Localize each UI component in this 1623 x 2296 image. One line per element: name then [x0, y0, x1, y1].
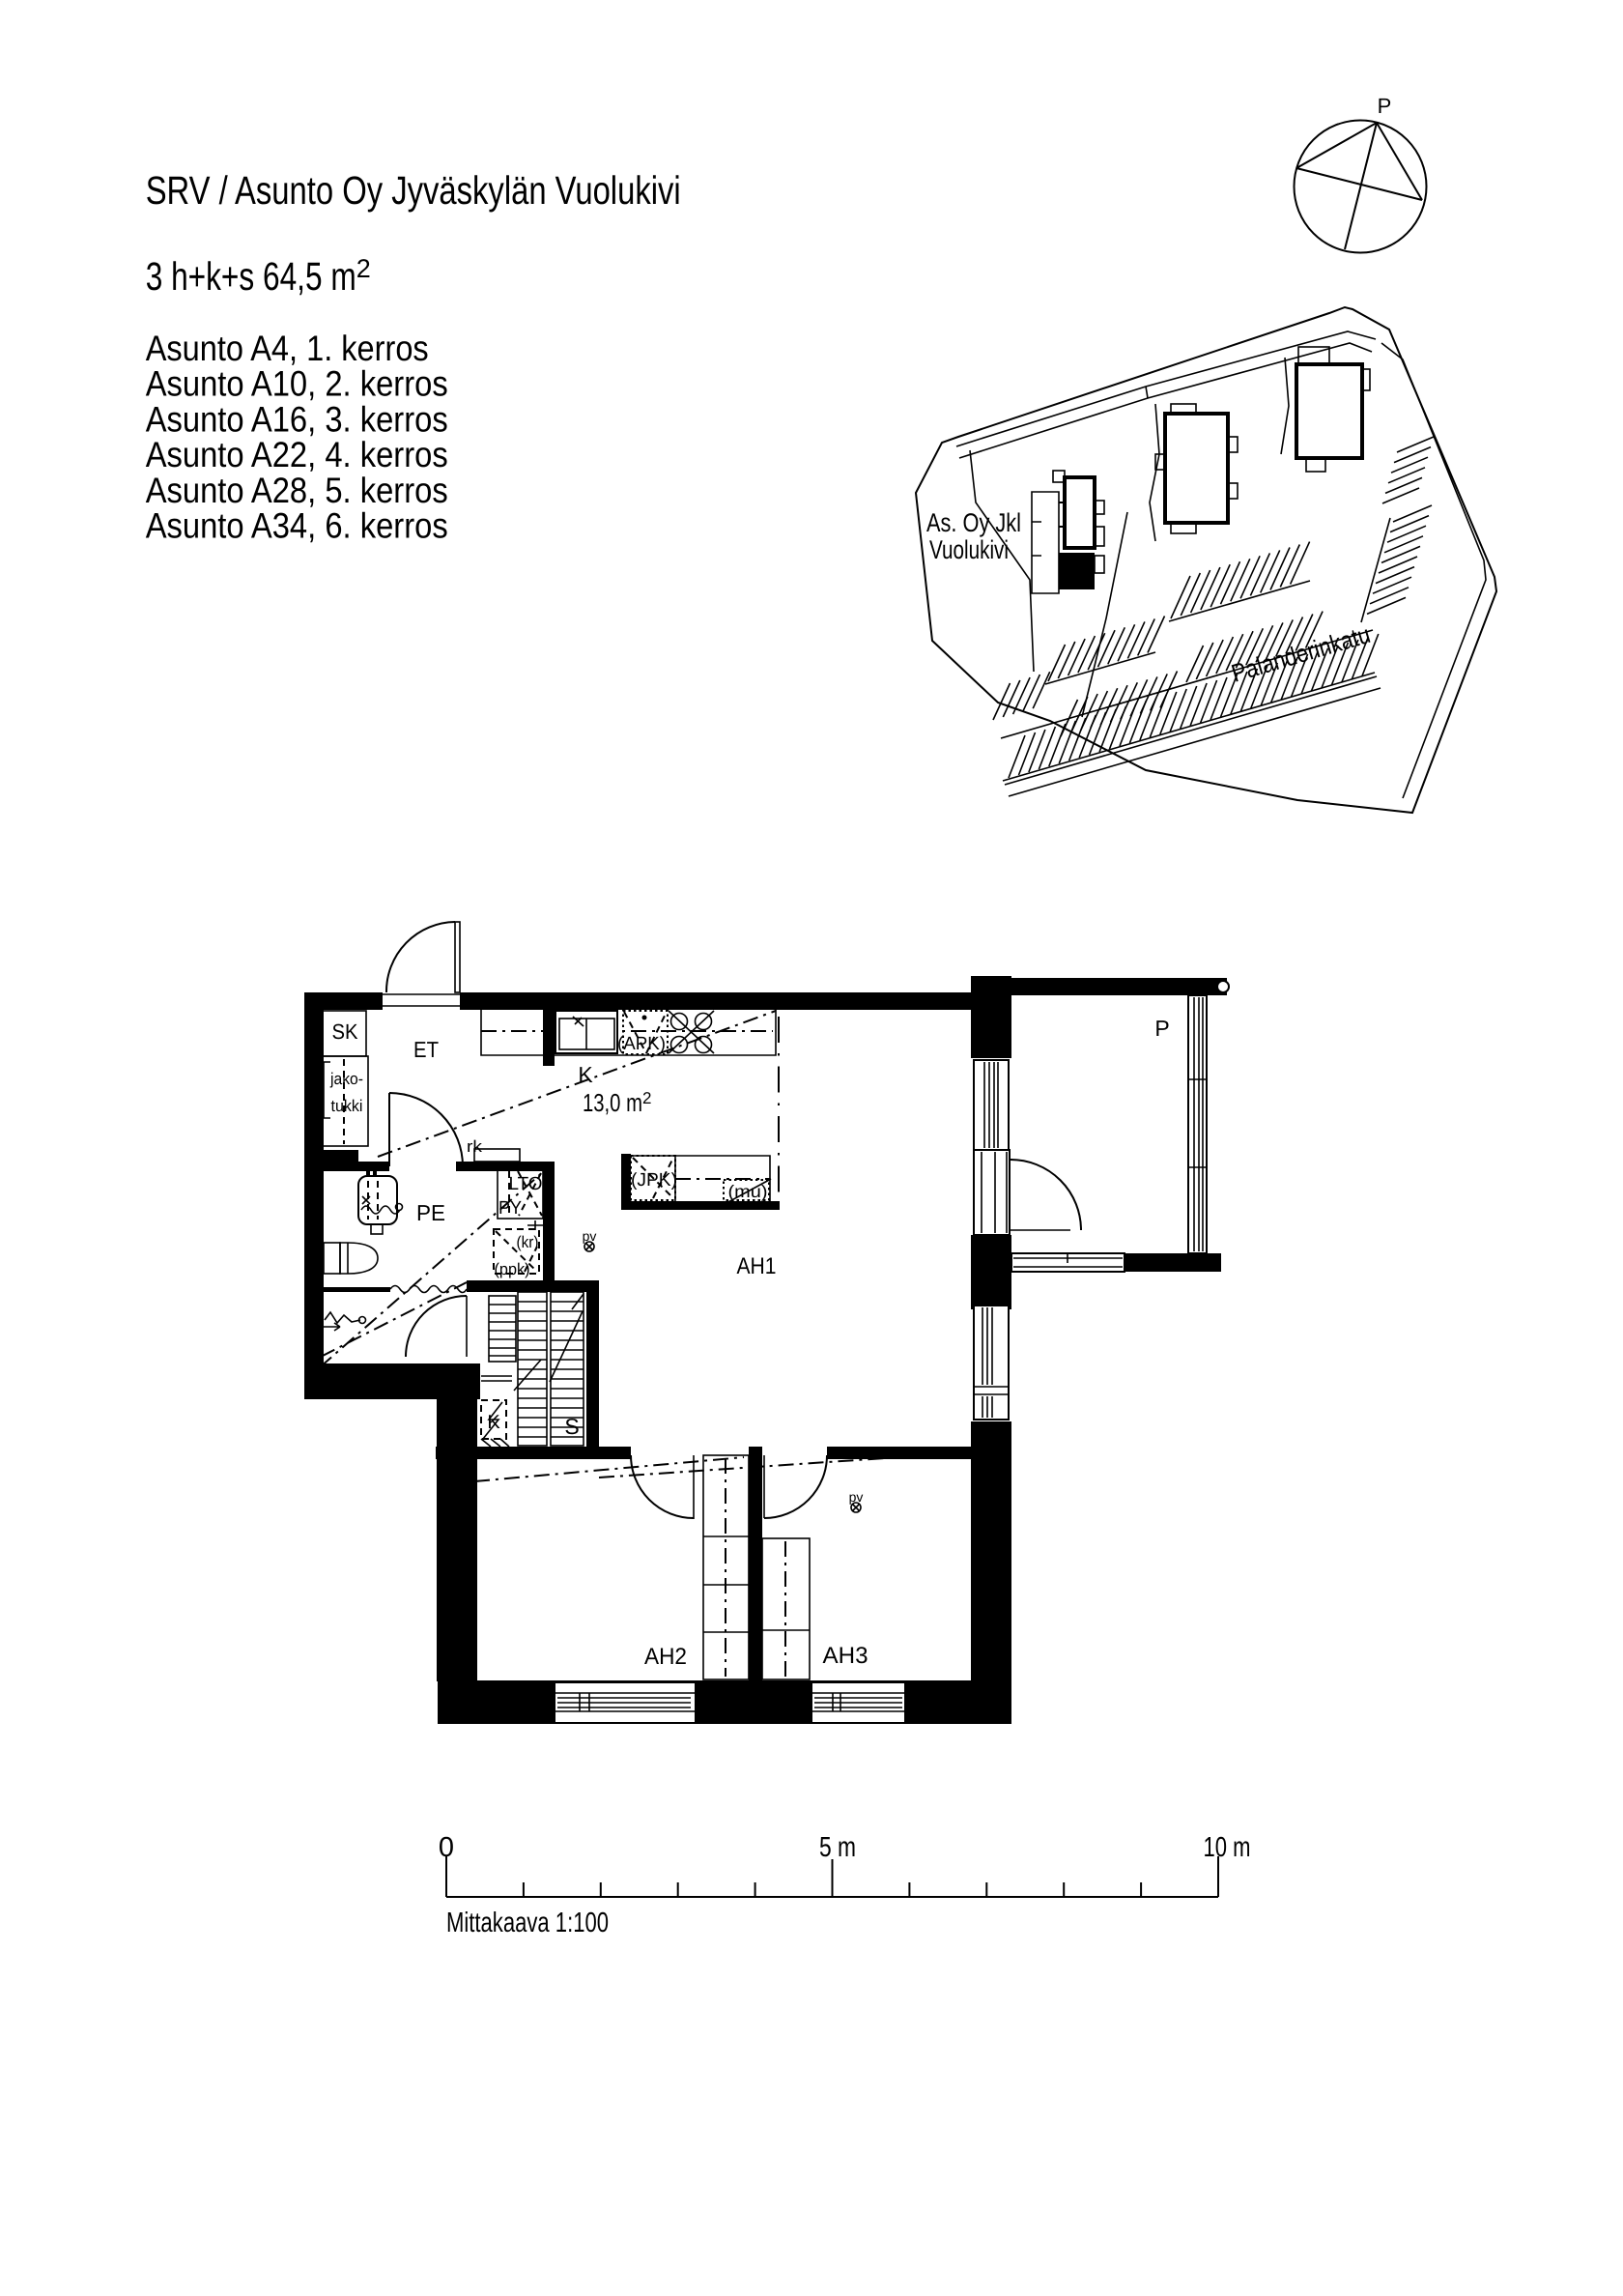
- svg-text:pv: pv: [583, 1228, 597, 1244]
- svg-text:K: K: [578, 1062, 593, 1087]
- svg-text:Vuolukivi: Vuolukivi: [929, 535, 1009, 564]
- svg-text:Asunto A22, 4. kerros: Asunto A22, 4. kerros: [146, 435, 448, 474]
- svg-text:(JPK): (JPK): [631, 1170, 677, 1191]
- svg-text:AH2: AH2: [644, 1644, 687, 1670]
- svg-text:0: 0: [439, 1832, 454, 1863]
- svg-text:As. Oy Jkl: As. Oy Jkl: [926, 508, 1021, 537]
- svg-text:Asunto A34, 6. kerros: Asunto A34, 6. kerros: [146, 506, 448, 546]
- svg-text:AH3: AH3: [823, 1643, 868, 1669]
- svg-text:Asunto A10, 2. kerros: Asunto A10, 2. kerros: [146, 364, 448, 404]
- svg-text:SK: SK: [332, 1019, 358, 1044]
- svg-text:Palanderinkatu: Palanderinkatu: [1228, 619, 1373, 688]
- svg-text:Asunto A28, 5. kerros: Asunto A28, 5. kerros: [146, 471, 448, 510]
- svg-text:jako-: jako-: [329, 1070, 363, 1088]
- svg-text:3 h+k+s 64,5 m2: 3 h+k+s 64,5 m2: [146, 254, 371, 299]
- svg-text:K: K: [487, 1412, 500, 1433]
- svg-text:(kr): (kr): [517, 1233, 539, 1251]
- svg-text:AH1: AH1: [737, 1253, 777, 1279]
- svg-text:LTO: LTO: [509, 1174, 543, 1194]
- svg-text:10 m: 10 m: [1204, 1832, 1251, 1863]
- svg-text:Asunto A16, 3. kerros: Asunto A16, 3. kerros: [146, 399, 448, 439]
- svg-text:(APK): (APK): [617, 1034, 666, 1054]
- svg-text:13,0 m2: 13,0 m2: [583, 1088, 651, 1117]
- svg-text:ET: ET: [413, 1037, 439, 1062]
- svg-text:SRV / Asunto Oy Jyväskylän Vuo: SRV / Asunto Oy Jyväskylän Vuolukivi: [146, 168, 681, 213]
- svg-text:P: P: [1154, 1016, 1169, 1041]
- svg-text:pv: pv: [849, 1489, 864, 1505]
- svg-text:tukki: tukki: [331, 1097, 363, 1115]
- svg-text:5 m: 5 m: [819, 1832, 856, 1863]
- svg-text:(ppk): (ppk): [495, 1260, 530, 1278]
- svg-text:P: P: [1378, 94, 1392, 118]
- svg-text:Asunto A4, 1. kerros: Asunto A4, 1. kerros: [146, 329, 429, 368]
- svg-text:S: S: [564, 1414, 579, 1439]
- svg-text:PE: PE: [416, 1200, 445, 1225]
- svg-text:Mittakaava 1:100: Mittakaava 1:100: [446, 1908, 609, 1938]
- svg-text:rk: rk: [467, 1137, 483, 1156]
